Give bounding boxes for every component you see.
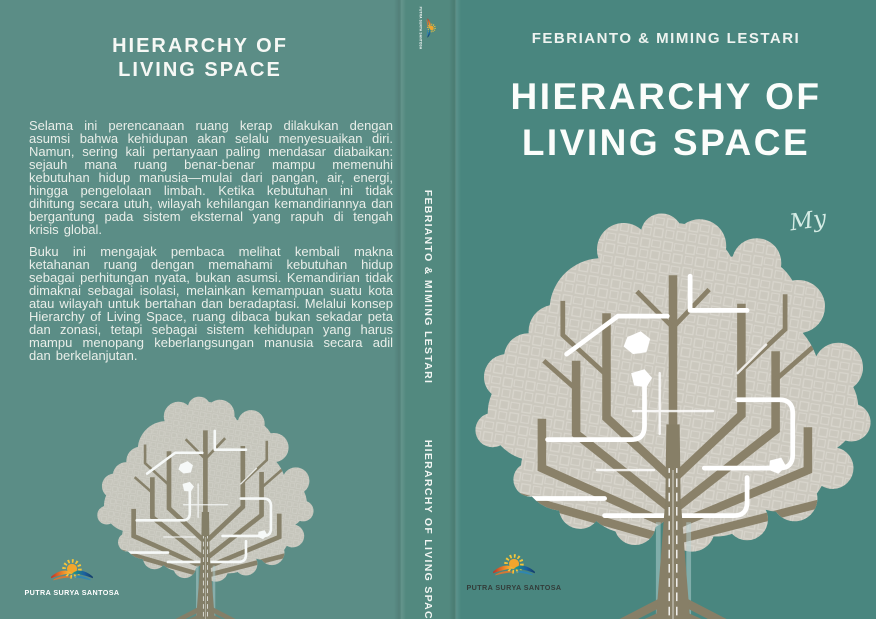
- front-cover-author: FEBRIANTO & MIMING LESTARI: [456, 30, 876, 47]
- publisher-logo-spine: PUTRA SURYA SANTOSA: [419, 6, 437, 49]
- front-title-line1: HIERARCHY OF: [456, 74, 876, 120]
- publisher-name: PUTRA SURYA SANTOSA: [466, 583, 561, 592]
- back-cover-title: HIERARCHY OF LIVING SPACE: [0, 34, 400, 82]
- blurb-paragraph-2: Buku ini mengajak pembaca melihat kembal…: [29, 245, 393, 362]
- publisher-sun-logo-icon: [491, 551, 537, 581]
- publisher-name: PUTRA SURYA SANTOSA: [419, 7, 423, 50]
- spine-author: FEBRIANTO & MIMING LESTARI: [422, 190, 434, 384]
- publisher-name: PUTRA SURYA SANTOSA: [24, 588, 119, 597]
- publisher-logo-back: PUTRA SURYA SANTOSA: [24, 556, 120, 597]
- book-cover: HIERARCHY OF LIVING SPACE Selama ini per…: [0, 0, 876, 619]
- publisher-logo-front: PUTRA SURYA SANTOSA: [466, 551, 562, 592]
- spine-title: HIERARCHY OF LIVING SPACE: [422, 440, 434, 619]
- back-title-line1: HIERARCHY OF: [0, 34, 400, 58]
- front-title-line2: LIVING SPACE: [456, 120, 876, 166]
- back-title-line2: LIVING SPACE: [0, 58, 400, 82]
- publisher-sun-logo-icon: [424, 18, 438, 39]
- back-cover-blurb: Selama ini perencanaan ruang kerap dilak…: [29, 119, 393, 371]
- publisher-sun-logo-icon: [49, 556, 95, 586]
- blurb-paragraph-1: Selama ini perencanaan ruang kerap dilak…: [29, 119, 393, 236]
- front-cover-title: HIERARCHY OF LIVING SPACE: [456, 74, 876, 166]
